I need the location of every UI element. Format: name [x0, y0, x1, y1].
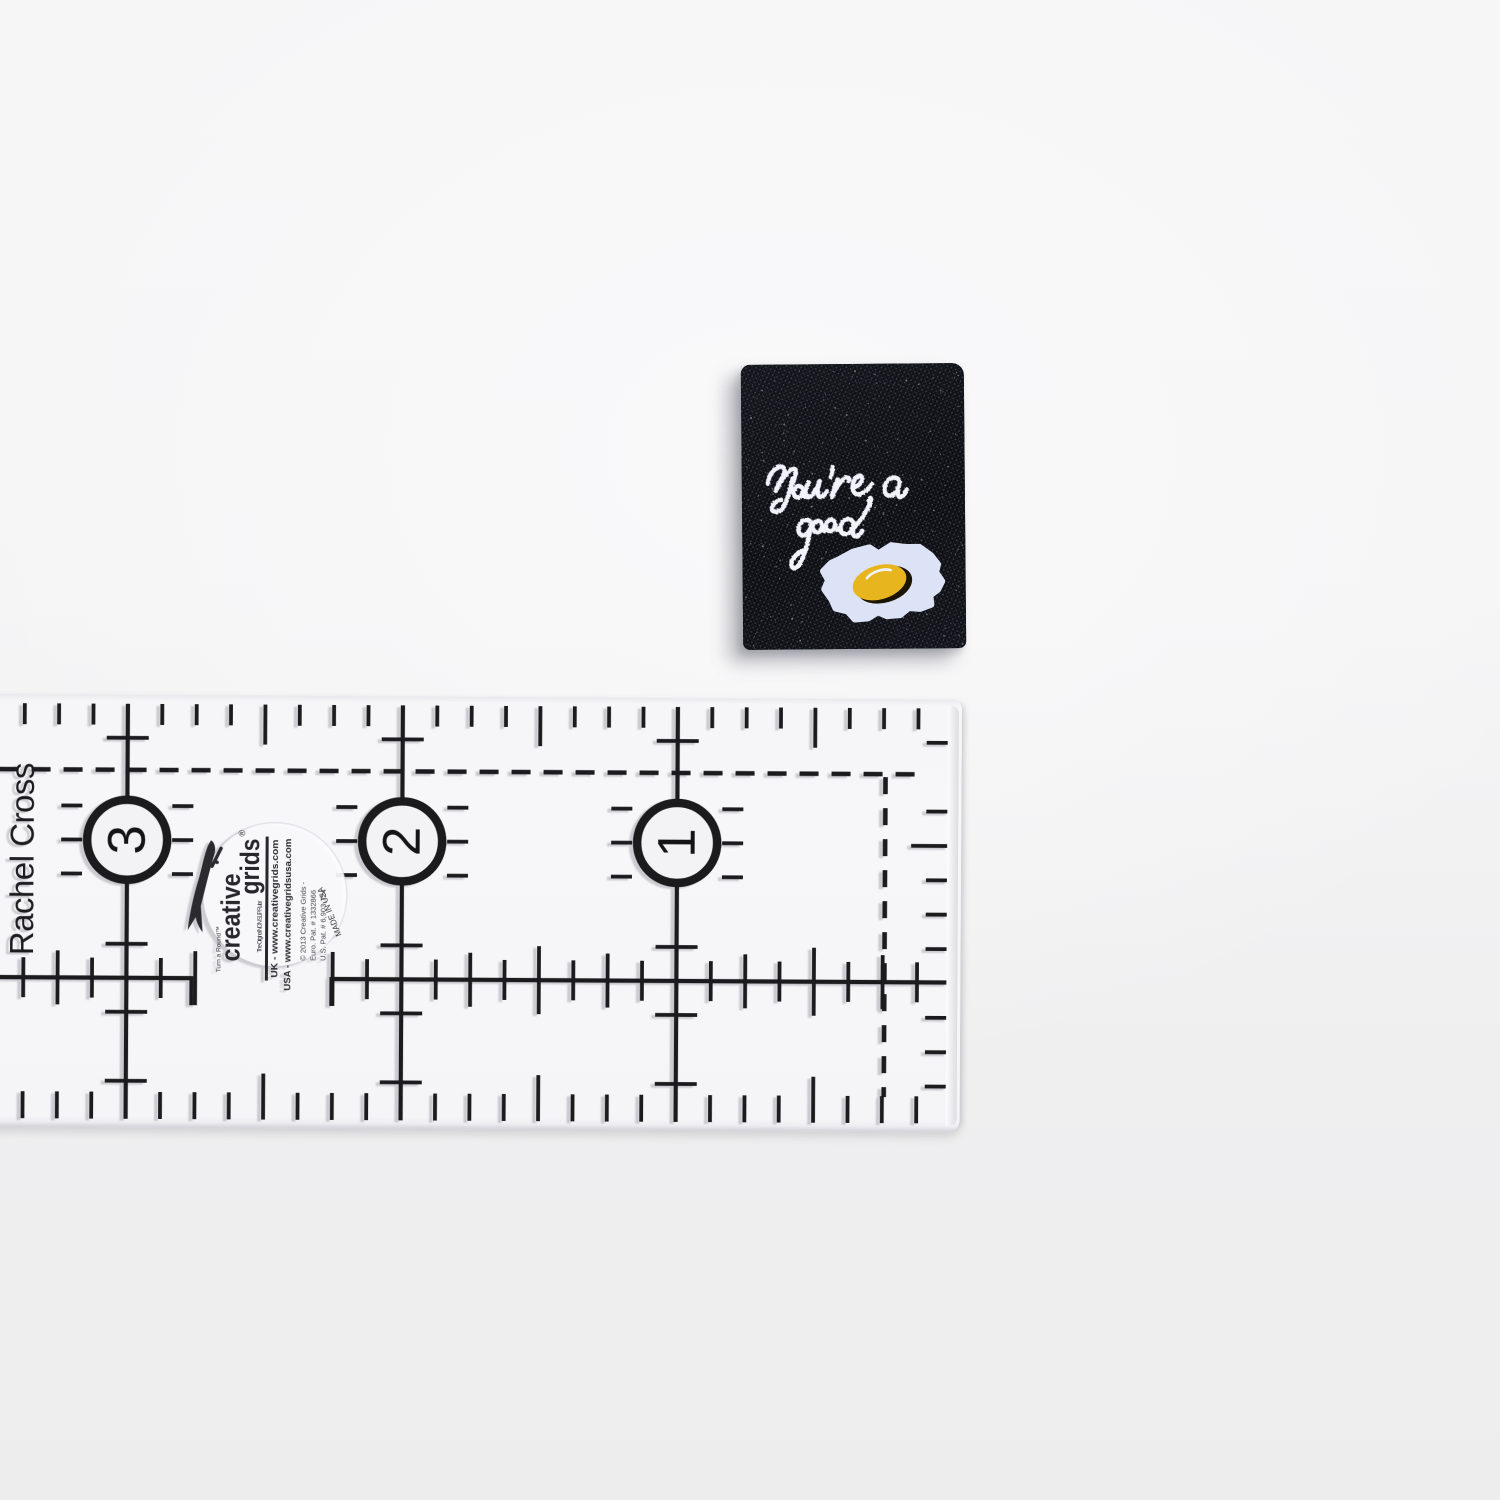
svg-text:3: 3 — [98, 825, 157, 855]
svg-text:1: 1 — [648, 828, 707, 858]
svg-text:© 2013 Creative Grids -: © 2013 Creative Grids - — [298, 881, 307, 960]
svg-text:grids: grids — [235, 838, 265, 894]
svg-text:The Original NON SLIP Ruler: The Original NON SLIP Ruler — [258, 901, 264, 953]
svg-text:Turn a Round™: Turn a Round™ — [215, 926, 222, 972]
svg-text:UK - www.creativegrids.com: UK - www.creativegrids.com — [269, 840, 281, 978]
svg-text:Rachel Cross: Rachel Cross — [3, 763, 41, 955]
svg-text:USA - www.creativegridsusa.com: USA - www.creativegridsusa.com — [282, 839, 294, 991]
svg-text:Euro. Pat. # 1332866: Euro. Pat. # 1332866 — [308, 890, 317, 961]
svg-text:®: ® — [237, 829, 247, 836]
svg-text:2: 2 — [373, 826, 432, 856]
